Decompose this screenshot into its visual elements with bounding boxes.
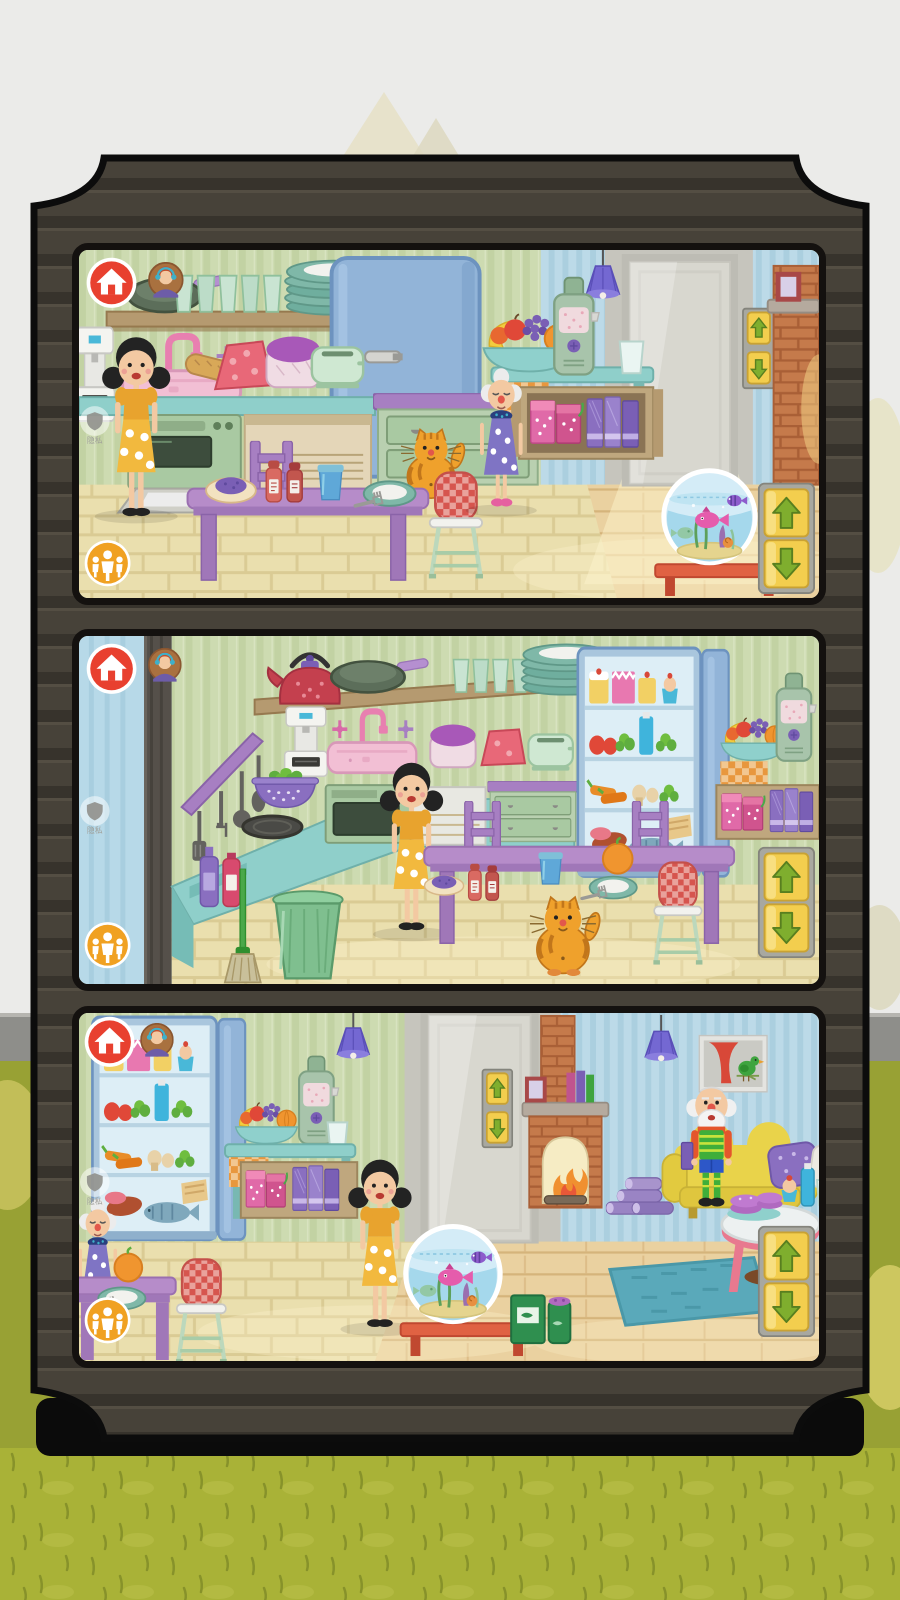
background-tree — [408, 118, 464, 164]
door[interactable] — [420, 1013, 538, 1244]
toast-with-jam[interactable] — [425, 876, 464, 895]
toast-with-jam[interactable] — [206, 477, 256, 502]
home-button[interactable] — [85, 1017, 135, 1067]
trash-can[interactable] — [273, 891, 343, 978]
fish-bowl[interactable] — [406, 1226, 500, 1321]
elevator-panel[interactable] — [759, 848, 814, 957]
parent-avatar[interactable] — [141, 1024, 173, 1057]
scene-kitchen-dining: 隐私 — [79, 250, 819, 598]
bottle — [801, 1168, 814, 1206]
background-leaves — [852, 905, 900, 1010]
home-button[interactable] — [87, 644, 137, 694]
family-button[interactable] — [85, 1297, 131, 1343]
svg-text:隐私: 隐私 — [87, 1196, 103, 1206]
ham[interactable] — [482, 729, 525, 765]
drinking-glass[interactable] — [620, 341, 644, 373]
cup[interactable] — [318, 465, 344, 500]
house-edge — [144, 636, 172, 984]
parent-avatar[interactable] — [149, 263, 183, 298]
jam-boxes — [531, 401, 583, 443]
family-button[interactable] — [85, 540, 131, 586]
parent-avatar[interactable] — [149, 649, 181, 682]
scene-kitchen-wide: 隐私 — [79, 636, 819, 984]
cabinet-jams-books[interactable] — [241, 1162, 357, 1218]
drawers[interactable] — [487, 781, 578, 841]
grass — [0, 1448, 900, 1600]
elevator-panel[interactable] — [759, 1227, 814, 1336]
cabinet-jams-books[interactable] — [716, 785, 819, 839]
cabinet-jams-books[interactable] — [511, 387, 663, 459]
svg-text:隐私: 隐私 — [87, 435, 103, 445]
elevator-buttons[interactable] — [482, 1070, 512, 1148]
game-panel-1[interactable]: 隐私 — [72, 243, 826, 605]
refrigerator-open[interactable] — [578, 648, 729, 876]
stove-burner[interactable] — [243, 816, 302, 838]
toaster[interactable] — [528, 735, 573, 771]
bread-loaf[interactable] — [430, 724, 475, 767]
background-leaves — [848, 398, 900, 573]
family-button[interactable] — [85, 922, 131, 968]
fish-food[interactable] — [511, 1295, 570, 1343]
game-panel-3[interactable]: 隐私 — [72, 1006, 826, 1368]
toaster[interactable] — [312, 347, 364, 388]
elevator-buttons[interactable] — [743, 309, 775, 389]
svg-text:隐私: 隐私 — [87, 825, 103, 835]
elevator-panel[interactable] — [759, 484, 814, 593]
game-panel-2[interactable]: 隐私 — [72, 629, 826, 991]
home-button[interactable] — [87, 258, 137, 308]
rug[interactable] — [610, 1258, 770, 1326]
cup[interactable] — [538, 852, 562, 884]
books — [587, 397, 638, 447]
scene-kitchen-living: 隐私 — [79, 1013, 819, 1361]
fireplace[interactable] — [768, 266, 819, 485]
fish-bowl[interactable] — [664, 471, 755, 563]
wall-picture[interactable] — [699, 1035, 768, 1093]
